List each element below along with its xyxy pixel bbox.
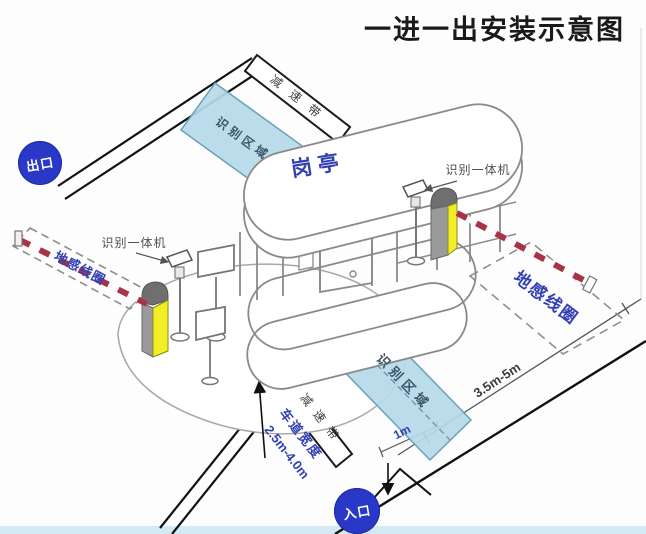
entrance-badge: 入口 — [334, 488, 380, 534]
installation-diagram: 一进一出安装示意图 出口 入口 岗亭 识别区域 识别区域 地感线圈 地感线圈 减… — [0, 0, 646, 534]
exit-badge-label: 出口 — [25, 151, 56, 175]
bottom-strip — [0, 526, 646, 534]
leader-reader-exit — [136, 253, 168, 262]
door-handle — [350, 271, 356, 277]
entrance-corner-mark — [373, 469, 431, 499]
arm-end-post — [15, 231, 22, 246]
camera-head-icon — [167, 250, 192, 267]
barrier-machine-exit — [142, 282, 168, 357]
reader-entry-label: 识别一体机 — [445, 164, 510, 176]
reader-exit-label: 识别一体机 — [101, 237, 166, 249]
barrier-machine-entry — [431, 188, 457, 260]
exit-badge: 出口 — [18, 141, 62, 185]
diagram-title: 一进一出安装示意图 — [364, 8, 625, 47]
entrance-badge-label: 入口 — [342, 499, 373, 523]
